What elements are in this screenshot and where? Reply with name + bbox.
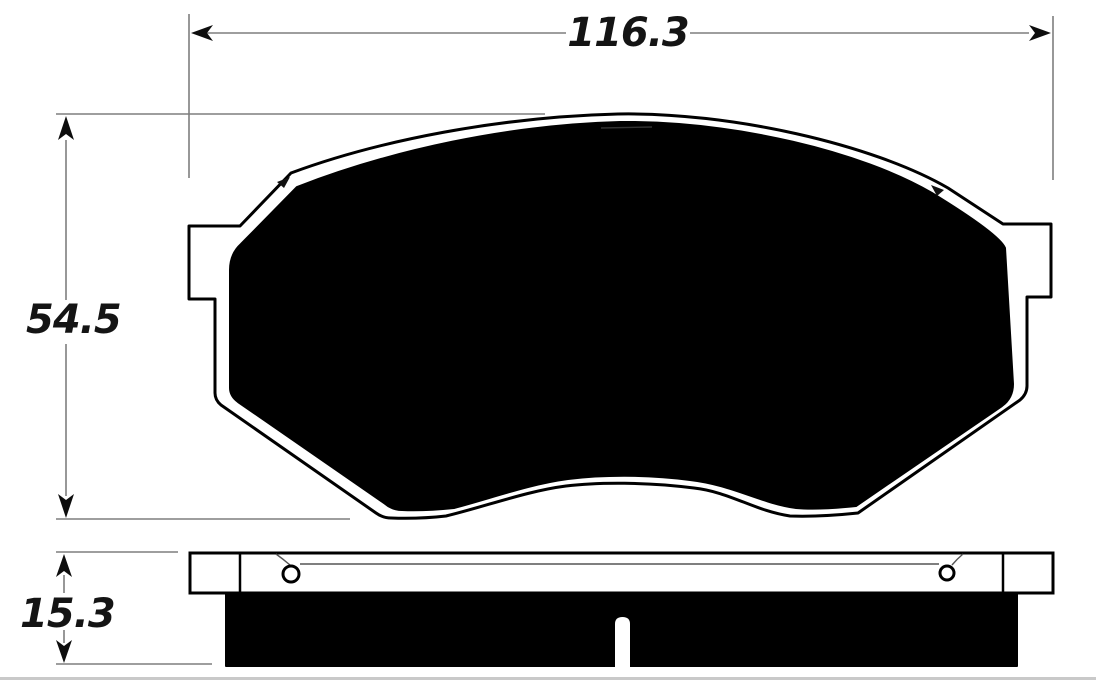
thickness-dimension: 15.3: [20, 552, 212, 664]
rivet-hole-right: [940, 566, 954, 580]
brake-pad-drawing-canvas: 116.3 54.5: [0, 0, 1096, 681]
height-arrowhead-down: [58, 494, 74, 518]
brake-pad-drawing: 116.3 54.5: [0, 0, 1096, 681]
thickness-arrowhead-up: [56, 554, 72, 577]
width-dimension-label: 116.3: [567, 10, 689, 56]
side-backplate: [190, 553, 1053, 593]
height-dimension-label: 54.5: [26, 297, 121, 343]
surface-step-line: [601, 127, 652, 128]
rivet-hole-left: [283, 566, 299, 582]
height-arrowhead-up: [58, 116, 74, 140]
thickness-dimension-label: 15.3: [20, 591, 115, 637]
width-arrowhead-right: [1029, 25, 1051, 41]
pad-side-view: [190, 553, 1053, 668]
thickness-arrowhead-down: [56, 640, 72, 663]
pad-face-view: [189, 114, 1051, 518]
friction-material: [230, 122, 1013, 510]
wear-slot: [615, 617, 630, 668]
